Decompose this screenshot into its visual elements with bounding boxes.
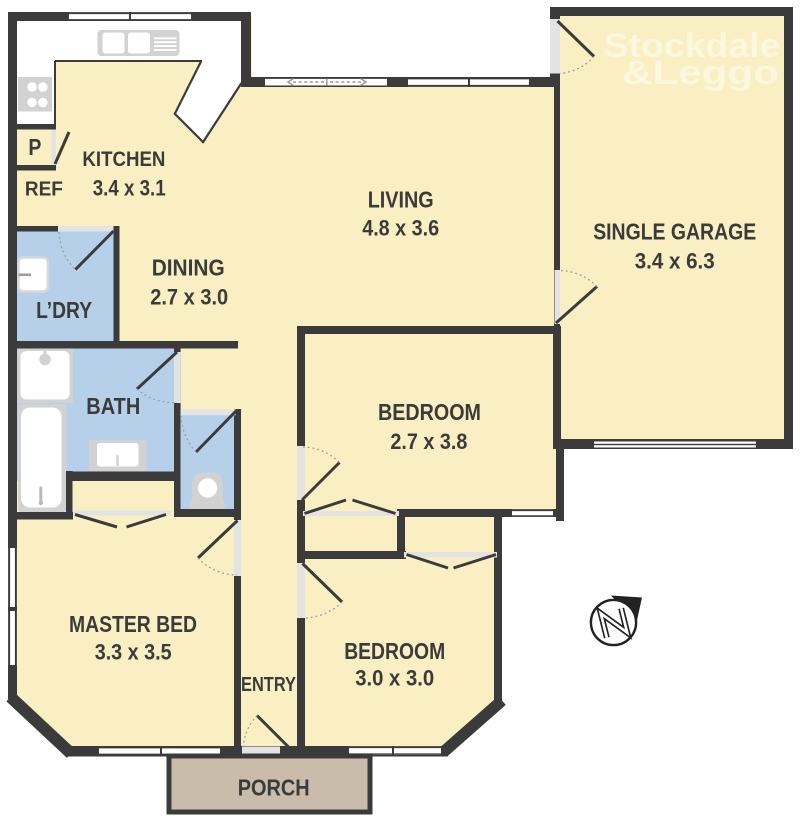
svg-text:SINGLE GARAGE: SINGLE GARAGE: [593, 218, 756, 244]
svg-text:3.4 x 6.3: 3.4 x 6.3: [635, 249, 715, 274]
svg-text:&Leggo: &Leggo: [622, 54, 779, 92]
svg-text:BEDROOM: BEDROOM: [344, 638, 445, 664]
svg-text:REF: REF: [25, 178, 63, 201]
svg-text:L’DRY: L’DRY: [36, 297, 92, 323]
svg-text:3.4 x 3.1: 3.4 x 3.1: [93, 176, 166, 201]
svg-text:KITCHEN: KITCHEN: [82, 148, 165, 171]
svg-text:3.0 x 3.0: 3.0 x 3.0: [355, 665, 434, 690]
svg-text:BATH: BATH: [86, 393, 140, 419]
svg-text:LIVING: LIVING: [368, 186, 434, 212]
svg-text:PORCH: PORCH: [238, 775, 310, 801]
svg-text:MASTER BED: MASTER BED: [69, 611, 197, 637]
svg-text:3.3 x 3.5: 3.3 x 3.5: [95, 639, 172, 664]
svg-text:ENTRY: ENTRY: [241, 674, 297, 696]
svg-text:DINING: DINING: [152, 255, 225, 281]
svg-text:2.7 x 3.0: 2.7 x 3.0: [150, 285, 228, 310]
svg-text:P: P: [28, 134, 41, 160]
svg-text:BEDROOM: BEDROOM: [378, 399, 481, 425]
svg-text:2.7 x 3.8: 2.7 x 3.8: [390, 429, 467, 454]
svg-text:4.8 x 3.6: 4.8 x 3.6: [362, 216, 439, 241]
